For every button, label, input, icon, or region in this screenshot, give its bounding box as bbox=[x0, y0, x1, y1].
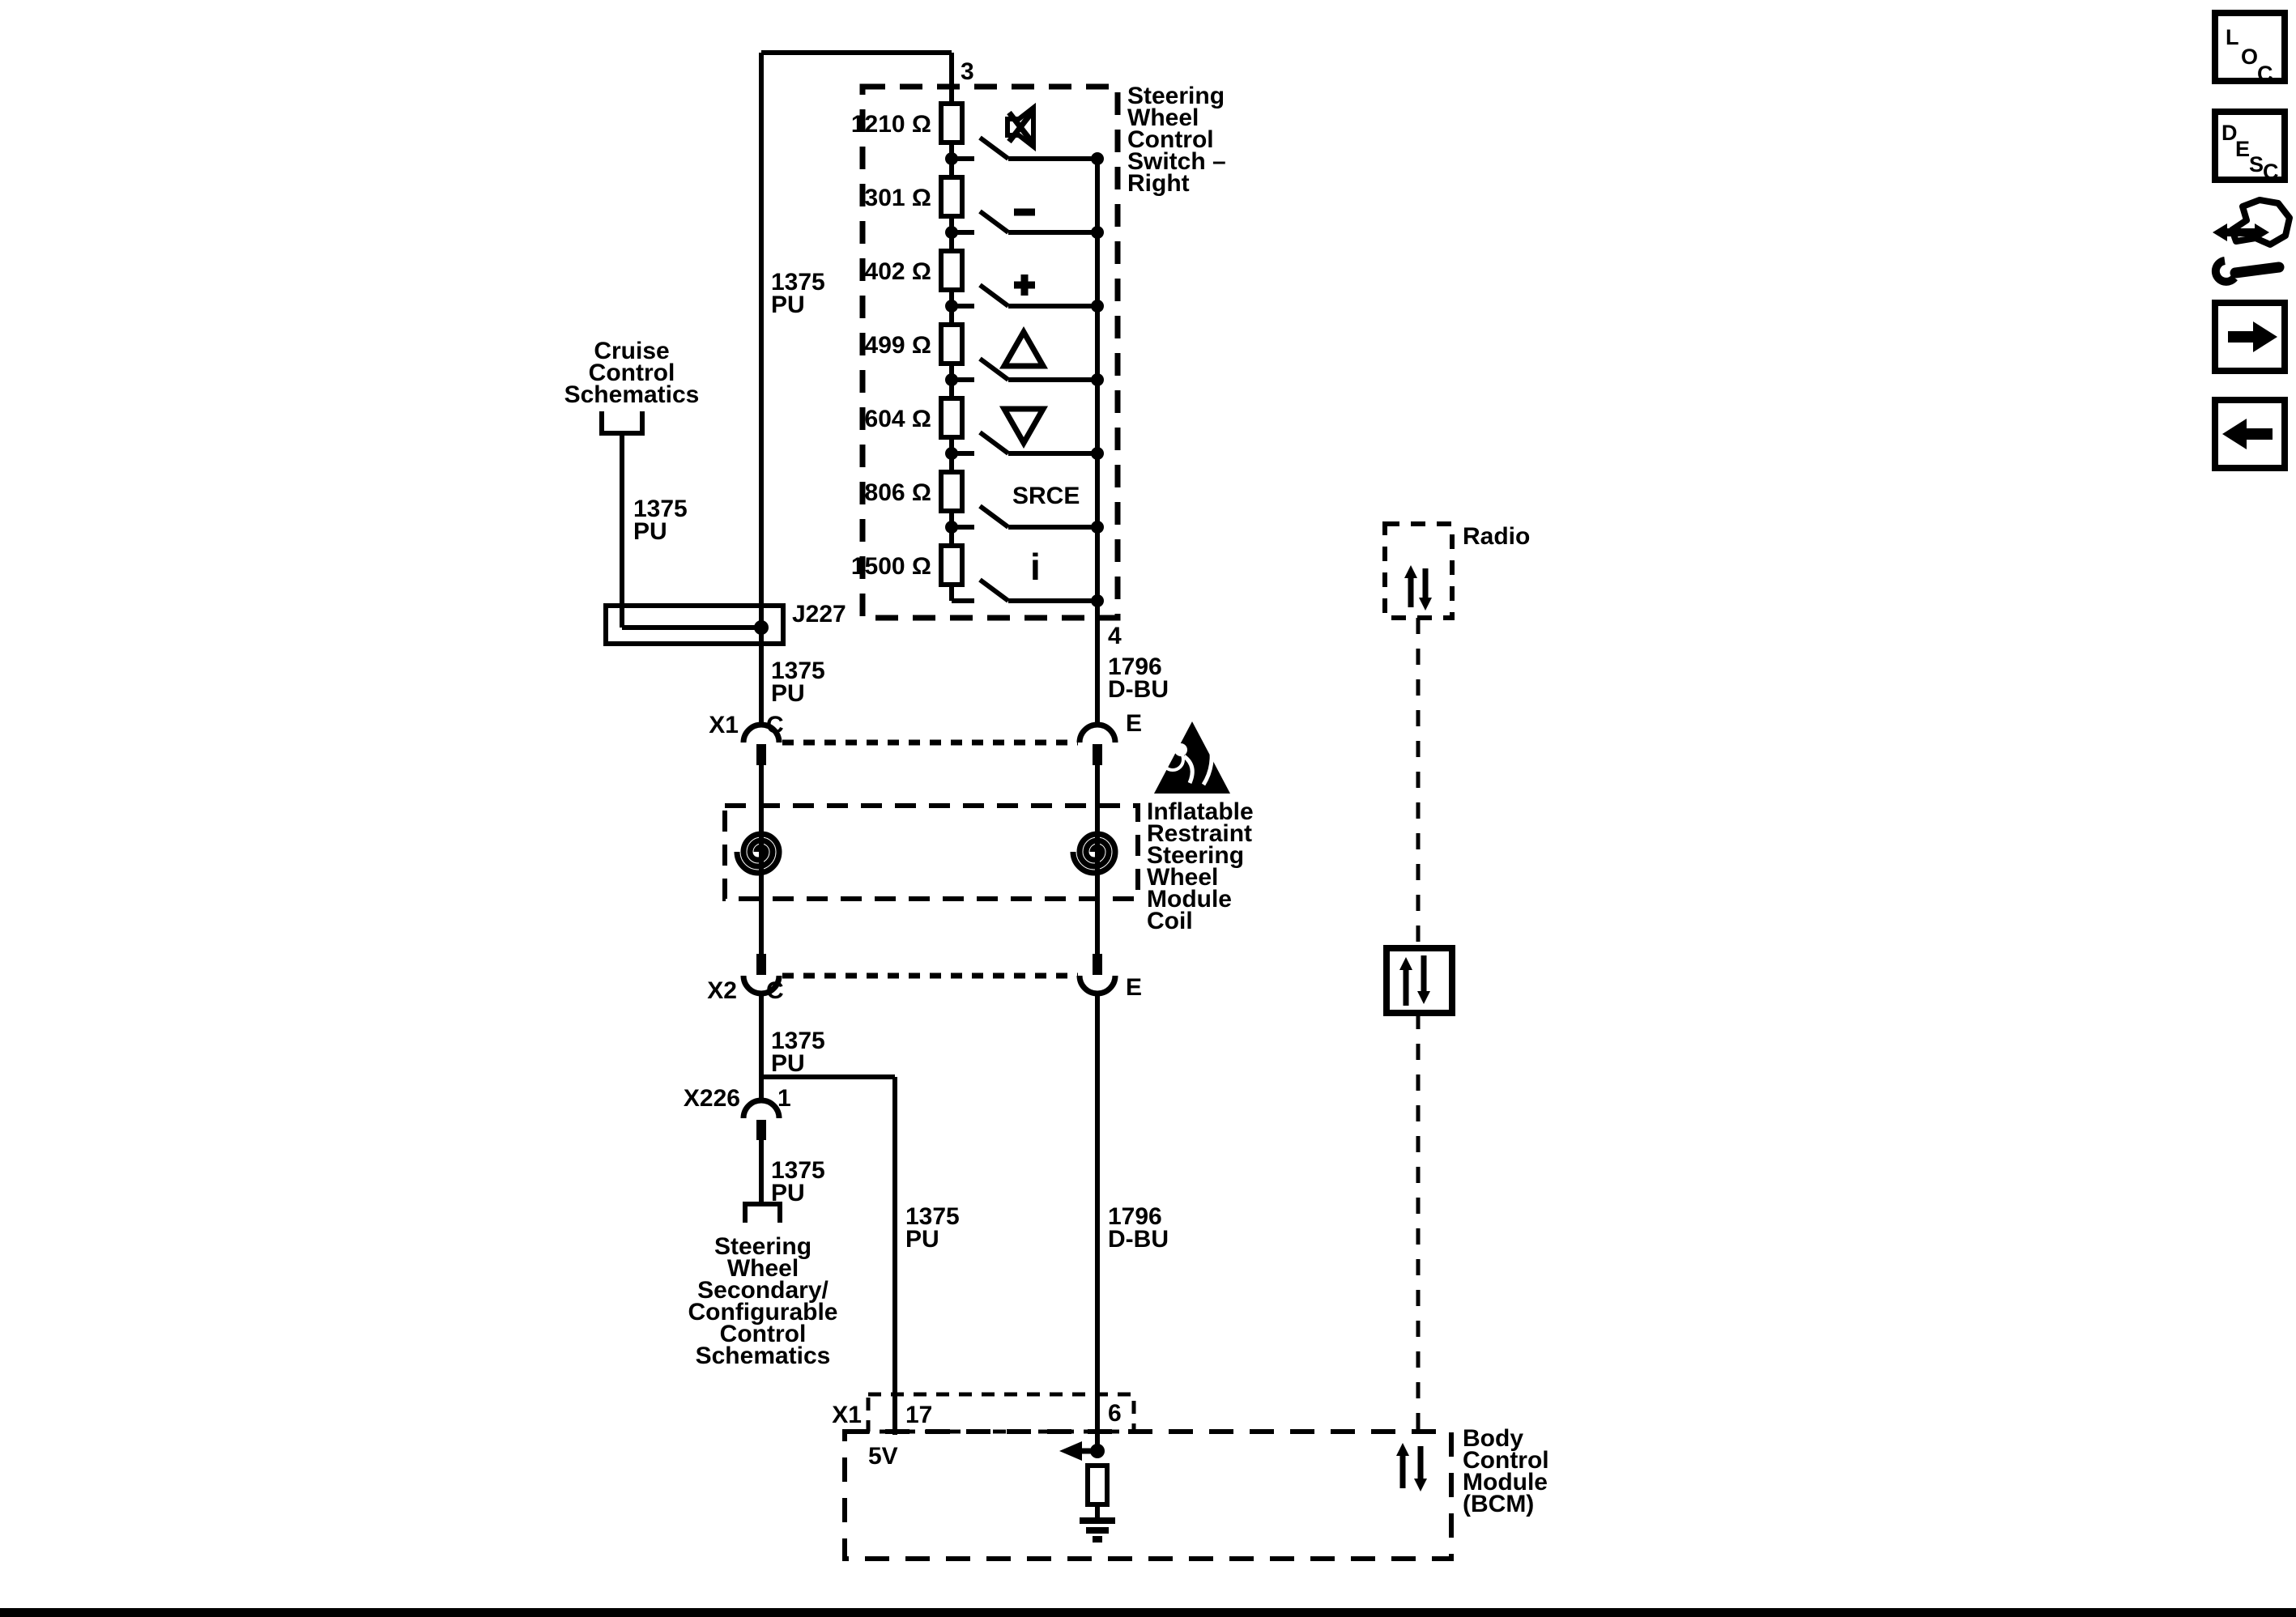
pin-e-label: E bbox=[1126, 974, 1142, 1001]
pin-1-label: 1 bbox=[777, 1085, 791, 1112]
pin-c-label: C bbox=[766, 977, 784, 1004]
switch-contacts bbox=[952, 138, 1097, 601]
serial-data-link-icon bbox=[1387, 948, 1452, 1013]
wire-label: D-BU bbox=[1108, 676, 1169, 703]
triangle-up-icon bbox=[1004, 332, 1043, 366]
resistor-806 bbox=[941, 472, 962, 511]
pin-17-label: 17 bbox=[905, 1402, 932, 1428]
toolbar: L O C D E S C bbox=[2213, 13, 2290, 468]
svg-text:Coil: Coil bbox=[1147, 908, 1193, 934]
wrench-handle bbox=[2235, 267, 2279, 273]
connector-pin bbox=[1093, 954, 1102, 975]
connector-arc bbox=[1080, 725, 1115, 743]
vehicle-nav-icon[interactable] bbox=[2213, 200, 2290, 282]
serial-data-arrows-icon bbox=[1396, 1443, 1427, 1491]
svg-text:C: C bbox=[2263, 160, 2279, 184]
connector-pin bbox=[756, 954, 766, 975]
bcm-name: Body Control Module (BCM) bbox=[1463, 1425, 1549, 1517]
mute-speaker-icon bbox=[1007, 108, 1033, 147]
5v-label: 5V bbox=[868, 1443, 898, 1470]
connector-id: X226 bbox=[684, 1085, 740, 1112]
cruise-control-schematics-link[interactable]: Cruise Control Schematics bbox=[564, 338, 700, 433]
pin-c-label: C bbox=[766, 712, 784, 738]
resistor-1210 bbox=[941, 104, 962, 143]
resistor-value: 1500 Ω bbox=[851, 553, 931, 580]
pin-6-label: 6 bbox=[1108, 1400, 1122, 1427]
svg-text:E: E bbox=[2235, 137, 2250, 161]
connector-arc bbox=[743, 1100, 779, 1118]
bcm-internal-resistor bbox=[1088, 1466, 1107, 1504]
triangle-down-icon bbox=[1004, 409, 1043, 443]
connector-pin bbox=[1093, 744, 1102, 765]
signal-arrow-icon bbox=[1059, 1441, 1094, 1461]
loc-button[interactable]: L O C bbox=[2215, 13, 2285, 86]
forward-button[interactable] bbox=[2215, 303, 2285, 371]
splice-dot bbox=[754, 620, 769, 635]
info-icon: i bbox=[1030, 546, 1041, 588]
connector-x226: X226 1 bbox=[684, 1085, 791, 1140]
coil-module-name: Inflatable Restraint Steering Wheel Modu… bbox=[1147, 798, 1254, 934]
coil-spiral bbox=[1073, 834, 1115, 873]
wire-label: PU bbox=[905, 1226, 939, 1253]
wire-label: PU bbox=[771, 680, 805, 707]
desc-button[interactable]: D E S C bbox=[2215, 112, 2285, 184]
coil-spiral bbox=[737, 834, 779, 873]
resistor-1500 bbox=[941, 546, 962, 585]
terminal-4-label: 4 bbox=[1108, 623, 1122, 649]
connector-id: X1 bbox=[709, 712, 739, 738]
connector-pin bbox=[756, 1120, 766, 1140]
resistor-604 bbox=[941, 398, 962, 437]
svg-text:Schematics[interactable]: Schematics bbox=[696, 1343, 831, 1369]
connector-x2: X2 C E bbox=[707, 954, 1142, 1004]
ground-icon bbox=[1080, 1521, 1115, 1539]
wire-label: PU bbox=[771, 291, 805, 318]
terminal-3-label: 3 bbox=[961, 58, 974, 85]
resistor-499 bbox=[941, 325, 962, 364]
airbag-warning-icon bbox=[1154, 721, 1230, 794]
serial-data-arrows-icon bbox=[1404, 565, 1432, 611]
connector-id: X2 bbox=[707, 977, 737, 1004]
resistor-value: 499 Ω bbox=[865, 332, 931, 359]
connector-arc bbox=[1080, 976, 1115, 994]
radio: Radio bbox=[1385, 523, 1530, 618]
splice-label: J227 bbox=[792, 601, 846, 628]
svg-text:O: O bbox=[2241, 45, 2258, 69]
connector-pin bbox=[756, 744, 766, 765]
bcm-connector-id: X1 bbox=[832, 1402, 862, 1428]
svg-text:(BCM): (BCM) bbox=[1463, 1491, 1534, 1517]
resistor-value: 1210 Ω bbox=[851, 111, 931, 138]
offpage-bracket bbox=[602, 411, 642, 433]
bcm-dashed-box bbox=[845, 1432, 1451, 1559]
steering-wheel-control-switch-right: 3 1210 Ω 301 Ω 402 Ω 499 Ω 604 Ω 806 Ω 1… bbox=[851, 53, 1226, 649]
resistor-402 bbox=[941, 251, 962, 290]
resistor-value: 604 Ω bbox=[865, 406, 931, 432]
svg-text:C: C bbox=[2257, 62, 2273, 86]
wire-label: PU bbox=[633, 518, 667, 545]
connector-x1: X1 C E bbox=[709, 710, 1142, 765]
offpage-bracket bbox=[745, 1204, 780, 1223]
radio-dashed-box bbox=[1385, 524, 1452, 618]
wiring-diagram: 3 1210 Ω 301 Ω 402 Ω 499 Ω 604 Ω 806 Ω 1… bbox=[0, 0, 2296, 1617]
resistor-value: 301 Ω bbox=[865, 185, 931, 211]
srce-label: SRCE bbox=[1012, 483, 1080, 509]
inflatable-restraint-coil: Inflatable Restraint Steering Wheel Modu… bbox=[725, 798, 1254, 934]
resistor-value: 402 Ω bbox=[865, 258, 931, 285]
plus-icon bbox=[1014, 274, 1035, 296]
window-bottom-edge bbox=[0, 1608, 2296, 1617]
steering-wheel-secondary-link[interactable]: Steering Wheel Secondary/ Configurable C… bbox=[688, 1204, 838, 1369]
svg-text:L: L bbox=[2226, 25, 2239, 49]
radio-label: Radio bbox=[1463, 523, 1530, 550]
pin-e-label: E bbox=[1126, 710, 1142, 737]
svg-text:Right: Right bbox=[1127, 170, 1190, 197]
switch-name: Steering Wheel Control Switch – Right bbox=[1127, 83, 1226, 197]
body-control-module: X1 17 6 5V Body Control Module (BCM) bbox=[832, 1394, 1548, 1559]
svg-text:Schematics[interactable]: Schematics bbox=[564, 381, 700, 408]
splice-j227: J227 bbox=[606, 601, 846, 644]
resistor-301 bbox=[941, 177, 962, 216]
back-button[interactable] bbox=[2215, 400, 2285, 468]
svg-text:S: S bbox=[2249, 152, 2264, 177]
resistor-value: 806 Ω bbox=[865, 479, 931, 506]
wire-label: PU bbox=[771, 1050, 805, 1077]
wire-label: D-BU bbox=[1108, 1226, 1169, 1253]
